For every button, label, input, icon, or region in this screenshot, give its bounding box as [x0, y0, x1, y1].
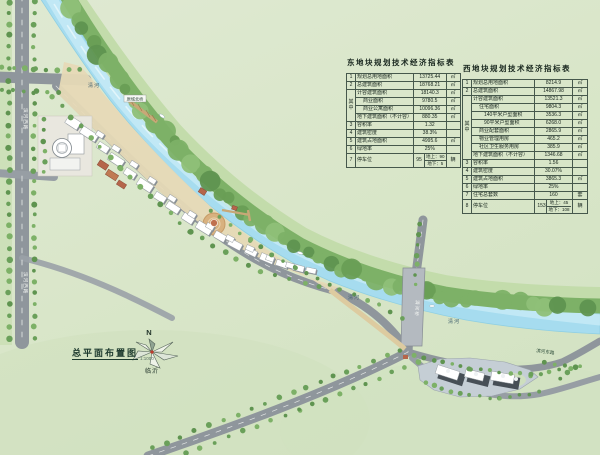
row-unit: ㎡: [446, 82, 460, 90]
river-label: 清河: [88, 82, 100, 89]
row-label: 规划总用地面积: [472, 80, 535, 88]
row-unit: 辆: [573, 200, 588, 214]
tree: [518, 393, 522, 397]
tree: [6, 44, 10, 48]
tree: [169, 211, 173, 215]
tree: [414, 253, 419, 258]
tree: [40, 139, 46, 145]
tree: [337, 391, 342, 396]
row-unit: ㎡: [446, 106, 460, 114]
tree: [120, 84, 131, 95]
tree: [273, 273, 277, 277]
tree: [75, 21, 88, 34]
row-unit: ㎡: [446, 74, 460, 82]
row-unit: ㎡: [573, 80, 588, 88]
tree: [148, 193, 154, 199]
tree: [553, 363, 557, 367]
tree: [6, 111, 11, 116]
tree: [458, 364, 462, 368]
tree: [304, 271, 308, 275]
row-unit: [446, 146, 460, 154]
tree: [33, 66, 38, 71]
row-index: 5: [463, 176, 472, 184]
tree: [31, 202, 37, 208]
row-unit: ㎡: [573, 104, 588, 112]
row-value: 13521.3: [535, 96, 573, 104]
row-value: 385.9: [535, 144, 573, 152]
row-index: 7: [463, 192, 472, 200]
row-label: 建筑密度: [472, 168, 535, 176]
row-label: 总建筑面积: [356, 82, 414, 90]
row-unit: ㎡: [573, 128, 588, 136]
row-label: 绿地率: [356, 146, 414, 154]
tree: [250, 407, 254, 411]
tree: [42, 128, 46, 132]
tree: [537, 390, 541, 394]
tree: [77, 67, 82, 72]
row-index: 3: [463, 160, 472, 168]
row-label: 建筑密度: [356, 130, 414, 138]
tree: [6, 336, 12, 342]
row-value: 465.2: [535, 136, 573, 144]
tree: [218, 215, 222, 219]
tree: [488, 368, 492, 372]
row-value: 10096.36: [414, 106, 447, 114]
row-unit: ㎡: [573, 112, 588, 120]
tree: [227, 435, 231, 439]
row-unit: [573, 184, 588, 192]
row-value: 30.07%: [535, 168, 573, 176]
tree: [363, 382, 367, 386]
row-index: 8: [463, 200, 472, 214]
tree: [474, 372, 478, 376]
tree: [223, 249, 229, 255]
tree: [569, 301, 580, 312]
tree: [33, 245, 37, 249]
tree: [210, 243, 215, 248]
row-label: 规划总用地面积: [356, 74, 414, 82]
tree: [49, 94, 54, 99]
tree: [31, 33, 36, 38]
site-plan-sheet: N 临沂 清河 清河 清河 滨河西路 滨河西路 清河桥 滨河东路 原城北桥 东地…: [0, 0, 600, 455]
row-value: 9804.3: [535, 104, 573, 112]
row-unit: ㎡: [573, 136, 588, 144]
tree: [488, 397, 491, 400]
tree: [187, 230, 191, 234]
tree: [6, 56, 10, 60]
west-table-title: 西地块规划技术经济指标表: [463, 63, 588, 74]
svg-text:原城北桥: 原城北桥: [127, 96, 145, 103]
tree: [377, 303, 381, 307]
tree: [518, 371, 522, 375]
tree: [341, 259, 362, 280]
tree: [178, 221, 182, 225]
tree: [6, 202, 10, 206]
east-table: 1规划总用地面积13725.44㎡2总建筑面积18768.21㎡其中计容建筑面积…: [346, 73, 461, 168]
tree: [579, 299, 596, 316]
tree: [5, 123, 11, 129]
row-value: 1346.68: [535, 152, 573, 160]
row-value: 2865.9: [535, 128, 573, 136]
tree: [565, 370, 570, 375]
row-index: 3: [347, 122, 356, 130]
row-unit: 套: [573, 192, 588, 200]
landmark-tower-block: [38, 116, 92, 176]
tree: [331, 373, 336, 378]
tree: [33, 212, 37, 216]
tree: [6, 190, 11, 195]
tree: [539, 372, 543, 376]
tree: [32, 224, 36, 228]
row-value: 6268.0: [535, 120, 573, 128]
row-index: 2: [463, 88, 472, 96]
tree: [209, 209, 213, 213]
compass-city-label: 临沂: [145, 367, 159, 375]
row-label: 容积率: [356, 122, 414, 130]
tree: [416, 243, 419, 246]
tree: [67, 67, 72, 72]
tree: [200, 171, 221, 192]
tree: [268, 418, 273, 423]
tree: [7, 257, 13, 263]
tree: [389, 370, 394, 375]
tree: [501, 374, 505, 378]
tree: [440, 359, 445, 364]
tree: [6, 178, 12, 184]
tree: [5, 290, 11, 296]
tree: [421, 355, 426, 360]
road-name-label: 滨河西路: [22, 272, 29, 294]
tree: [277, 394, 282, 399]
tree: [310, 402, 315, 407]
tree: [291, 389, 297, 395]
tree: [287, 277, 291, 281]
row-unit: ㎡: [446, 90, 460, 98]
row-label: 建筑占地面积: [356, 138, 414, 146]
tree: [377, 377, 381, 381]
tree: [68, 115, 74, 121]
row-label: 140平米户型面积: [472, 112, 535, 120]
tree: [398, 348, 402, 352]
tree: [467, 366, 472, 371]
tree: [213, 441, 217, 445]
tree: [7, 11, 11, 15]
row-label: 商业面积: [356, 98, 414, 106]
row-index: 4: [463, 168, 472, 176]
row-unit: ㎡: [446, 138, 460, 146]
tree: [293, 266, 298, 271]
row-value: 9780.5: [414, 98, 447, 106]
row-value: 4995.6: [414, 138, 447, 146]
tree: [7, 233, 13, 239]
tree: [7, 66, 11, 70]
tree: [54, 67, 60, 73]
tree: [6, 89, 11, 94]
tree: [258, 244, 263, 249]
row-index: 5: [347, 138, 356, 146]
tree: [33, 124, 37, 128]
tree: [446, 369, 450, 373]
tree: [5, 78, 11, 84]
tree: [365, 298, 370, 303]
tree: [337, 287, 342, 292]
tree: [11, 88, 15, 92]
row-unit: 辆: [446, 154, 460, 168]
tree: [223, 192, 235, 204]
tree: [413, 273, 417, 277]
row-index: 6: [347, 146, 356, 154]
row-unit: ㎡: [573, 96, 588, 104]
old-bridge-label: 原城北桥: [124, 95, 146, 103]
tree: [357, 365, 361, 369]
tree: [458, 391, 463, 396]
tree: [416, 359, 422, 365]
tree: [238, 232, 242, 236]
tree: [255, 424, 260, 429]
tree: [233, 256, 238, 261]
tree: [439, 386, 443, 390]
tree: [222, 418, 226, 422]
tree: [450, 362, 454, 366]
row-unit: [446, 130, 460, 138]
row-label: 停车位: [356, 154, 414, 168]
tree: [493, 290, 513, 310]
tree: [178, 435, 182, 439]
row-value: 14867.98: [535, 88, 573, 96]
tree: [467, 290, 482, 305]
red-kiosk: [403, 355, 408, 359]
tree: [31, 235, 37, 241]
compass-n-label: N: [146, 328, 151, 337]
tree: [312, 252, 323, 263]
tree: [414, 283, 417, 286]
tree: [44, 68, 48, 72]
tree: [32, 111, 37, 116]
tree: [528, 393, 532, 397]
west-table: 1规划总用地面积8214.9㎡2总建筑面积14867.98㎡其中计容建筑面积13…: [462, 79, 588, 214]
group-cell: 其中: [463, 96, 472, 160]
tree: [33, 11, 37, 15]
tree: [60, 104, 64, 108]
tree: [32, 290, 37, 295]
tree: [303, 385, 309, 391]
tree: [118, 166, 123, 171]
tree: [32, 57, 36, 61]
tree: [402, 365, 407, 370]
tree: [7, 155, 13, 161]
tree: [42, 170, 46, 174]
tree: [31, 190, 36, 195]
tree: [344, 369, 349, 374]
row-label: 建筑占地面积: [472, 176, 535, 184]
row-unit: ㎡: [573, 176, 588, 184]
row-index: 7: [347, 154, 356, 168]
tree: [6, 32, 12, 38]
tree: [400, 316, 405, 321]
west-indicator-panel: 西地块规划技术经济指标表 1规划总用地面积8214.9㎡2总建筑面积14867.…: [462, 63, 588, 214]
tree: [443, 290, 461, 308]
row-unit: ㎡: [573, 152, 588, 160]
tree: [385, 353, 390, 358]
tree: [32, 314, 37, 319]
tree: [32, 101, 37, 106]
tree: [449, 389, 454, 394]
row-value: 3865.3: [535, 176, 573, 184]
row-index: 1: [463, 80, 472, 88]
tree: [88, 135, 93, 140]
tree: [236, 413, 241, 418]
row-index: 1: [347, 74, 356, 82]
tree: [558, 377, 562, 381]
tree: [415, 262, 420, 267]
row-unit: [573, 168, 588, 176]
tree: [6, 267, 12, 273]
row-label: 容积率: [472, 160, 535, 168]
tree: [478, 394, 481, 397]
tree: [128, 175, 133, 180]
row-unit: [446, 122, 460, 130]
row-unit: ㎡: [446, 114, 460, 122]
tree: [542, 360, 547, 365]
tree: [578, 364, 582, 368]
row-unit: [573, 160, 588, 168]
row-label: 计容建筑面积: [356, 90, 414, 98]
tree: [412, 353, 417, 358]
tree: [258, 270, 262, 274]
row-value: 38.3%: [414, 130, 447, 138]
tree: [32, 157, 37, 162]
row-value: 18140.3: [414, 90, 447, 98]
row-index: 2: [347, 82, 356, 90]
tree: [416, 232, 421, 237]
tree: [388, 310, 393, 315]
tree: [31, 324, 37, 330]
tree: [43, 149, 47, 153]
tree: [573, 364, 579, 370]
tree: [509, 371, 514, 376]
tree: [206, 422, 212, 428]
tree: [31, 22, 37, 28]
river-label: 清河: [348, 294, 360, 301]
tree: [497, 371, 501, 375]
tree: [297, 408, 301, 412]
row-value: 3536.3: [535, 112, 573, 120]
tree: [417, 222, 422, 227]
tree: [6, 133, 11, 138]
row-value: 880.35: [414, 114, 447, 122]
tree: [432, 383, 437, 388]
tree: [98, 145, 102, 149]
tree: [157, 201, 163, 207]
east-indicator-panel: 东地块规划技术经济指标表 1规划总用地面积13725.44㎡2总建筑面积1876…: [346, 57, 461, 168]
plan-title: 总平面布置图: [72, 348, 138, 360]
tree: [467, 393, 471, 397]
tree: [56, 90, 61, 95]
row-label: 总建筑面积: [472, 88, 535, 96]
row-value: 25%: [414, 146, 447, 154]
tree: [150, 445, 155, 450]
row-label: 地下建筑面积（不计容）: [356, 114, 414, 122]
row-value: 18768.21: [414, 82, 447, 90]
tree: [303, 281, 308, 286]
group-cell: 其中: [347, 90, 356, 122]
tree: [557, 368, 561, 372]
tree: [6, 222, 12, 228]
tree: [137, 184, 143, 190]
tree: [371, 359, 376, 364]
tree: [246, 263, 251, 268]
tree: [31, 147, 35, 151]
tree: [7, 167, 13, 173]
tree: [12, 66, 16, 70]
row-index: 4: [347, 130, 356, 138]
row-parking: 95地上：90地下：5: [414, 154, 447, 168]
row-label: 计容建筑面积: [472, 96, 535, 104]
row-label: 90平米户型面积: [472, 120, 535, 128]
row-label: 商业配套面积: [472, 128, 535, 136]
tree: [6, 324, 12, 330]
indicator-table: 1规划总用地面积8214.9㎡2总建筑面积14867.98㎡其中计容建筑面积13…: [462, 79, 588, 214]
river-label: 清河: [448, 318, 460, 325]
tree: [563, 363, 567, 367]
road-name-label: 滨河西路: [22, 108, 29, 130]
row-parking: 153地上：45地下：108: [535, 200, 573, 214]
row-value: 160: [535, 192, 573, 200]
tree: [7, 212, 12, 217]
row-index: 6: [463, 184, 472, 192]
tree: [0, 88, 4, 92]
tree: [33, 302, 37, 306]
row-label: 地下建筑面积（不计容）: [472, 152, 535, 160]
tree: [547, 370, 552, 375]
tree: [197, 445, 202, 450]
tree: [284, 414, 288, 418]
tree: [229, 223, 233, 227]
tree: [319, 380, 323, 384]
row-unit: ㎡: [446, 98, 460, 106]
tree: [323, 397, 329, 403]
tree: [6, 22, 12, 28]
tree: [32, 279, 37, 284]
tree: [33, 336, 37, 340]
tree: [108, 155, 114, 161]
tree: [240, 428, 246, 434]
row-unit: ㎡: [573, 144, 588, 152]
tree: [98, 52, 118, 72]
tree: [248, 237, 253, 242]
tree: [281, 259, 284, 262]
plaza-pavilion: [211, 220, 218, 227]
tree: [191, 428, 196, 433]
plan-scale: 1:1000: [140, 356, 154, 361]
row-unit: ㎡: [573, 120, 588, 128]
tree: [498, 396, 502, 400]
tree: [164, 440, 170, 446]
tree: [32, 179, 36, 183]
tree: [6, 278, 12, 284]
row-label: 住宅总套数: [472, 192, 535, 200]
tree: [22, 90, 26, 94]
east-table-title: 东地块规划技术经济指标表: [347, 57, 461, 68]
tree: [7, 301, 13, 307]
tree: [508, 395, 512, 399]
row-unit: ㎡: [573, 88, 588, 96]
tree: [424, 380, 429, 385]
tree: [30, 168, 36, 174]
tree: [79, 124, 84, 129]
row-label: 物业管理用房: [472, 136, 535, 144]
tree: [549, 297, 566, 314]
